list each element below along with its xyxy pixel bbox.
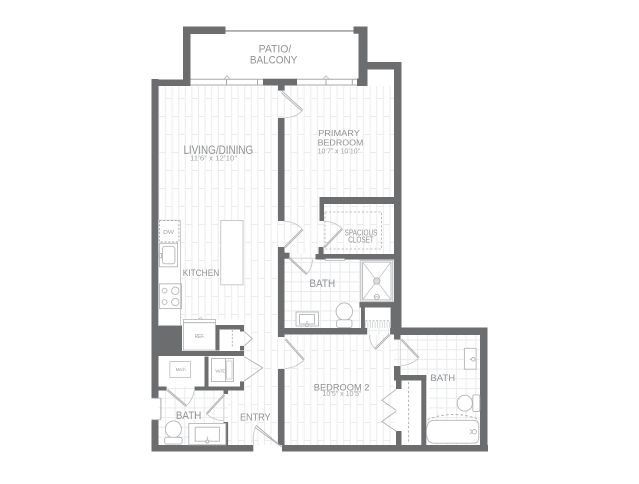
svg-text:DW: DW xyxy=(163,230,175,236)
svg-text:BALCONY: BALCONY xyxy=(250,54,298,66)
svg-text:W/D: W/D xyxy=(215,368,227,374)
svg-text:REF.: REF. xyxy=(195,334,205,340)
svg-text:11’6” x 12’10”: 11’6” x 12’10” xyxy=(190,155,238,162)
svg-text:ENTRY: ENTRY xyxy=(240,413,271,424)
svg-text:10’5” x 10’5”: 10’5” x 10’5” xyxy=(323,391,362,398)
svg-text:BEDROOM: BEDROOM xyxy=(318,137,364,147)
svg-text:BATH: BATH xyxy=(430,373,455,384)
svg-text:BATH: BATH xyxy=(176,410,201,422)
svg-text:BATH: BATH xyxy=(309,278,335,290)
svg-text:PRIMARY: PRIMARY xyxy=(318,128,360,138)
svg-text:CLOSET: CLOSET xyxy=(348,234,374,244)
svg-text:KITCHEN: KITCHEN xyxy=(183,268,220,278)
svg-text:Mech: Mech xyxy=(176,367,186,372)
svg-text:10’7” x 10’10”: 10’7” x 10’10” xyxy=(318,149,361,156)
